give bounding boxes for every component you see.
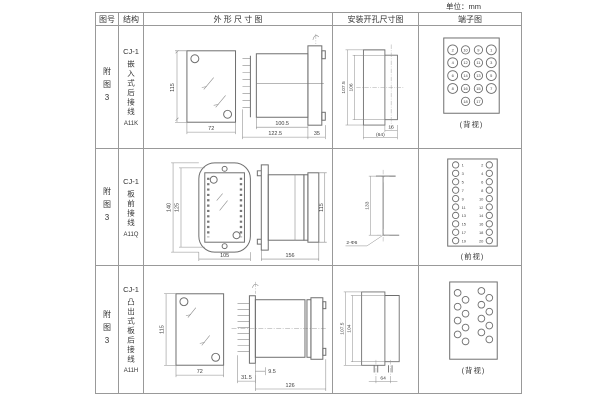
header-outline: 外 形 尺 寸 图 — [144, 13, 333, 26]
fig-no-label: 附图3 — [102, 187, 113, 227]
terminal-caption: (背视) — [460, 119, 484, 129]
header-install: 安装开孔尺寸图 — [333, 13, 419, 26]
front-view — [176, 294, 224, 365]
svg-text:3: 3 — [490, 60, 493, 65]
dim-length: 156 — [261, 242, 319, 261]
outline-svg-row3: 115 72 — [144, 266, 332, 393]
outline-svg-row2: 140 125 105 — [144, 149, 332, 265]
install-svg-row2: 2-Φ6 133 — [333, 149, 418, 265]
svg-text:8: 8 — [481, 188, 484, 193]
dim-106-label: 106 — [349, 83, 355, 91]
terminal-caption: (背视) — [462, 365, 486, 375]
dim-72-label: 72 — [208, 126, 214, 132]
dim-64-label: (64) — [376, 132, 385, 138]
dim-spacing: 133 — [364, 176, 381, 235]
type-code: A11H — [124, 368, 139, 374]
dim-100-5-label: 100.5 — [275, 121, 289, 127]
svg-text:9: 9 — [477, 47, 480, 52]
svg-text:17: 17 — [462, 230, 466, 235]
dim-flange: 35 — [308, 125, 325, 139]
dim-105-label: 105 — [220, 253, 229, 259]
dim-140-label: 140 — [167, 203, 173, 212]
svg-text:10: 10 — [479, 196, 484, 201]
svg-text:2: 2 — [481, 163, 483, 168]
fig-no-label: 附图3 — [102, 310, 113, 350]
dim-133-label: 133 — [364, 201, 370, 209]
svg-text:2: 2 — [452, 47, 454, 52]
dim-width: 72 — [187, 122, 236, 134]
svg-text:5: 5 — [490, 73, 493, 78]
terminal-svg-row3: (背视) — [419, 266, 521, 393]
svg-text:14: 14 — [479, 213, 484, 218]
svg-text:16: 16 — [479, 222, 484, 227]
svg-text:7: 7 — [490, 86, 492, 91]
outline-svg-row1: 115 72 — [144, 26, 332, 148]
terminal-drawing-row1: 210914121136141358161571817 (背视) — [419, 26, 522, 149]
dim-body-length: 100.5 — [256, 117, 308, 129]
dim-31-5-label: 31.5 — [241, 375, 252, 381]
install-drawing-row3: 107.5 104 64 — [333, 266, 419, 394]
dim-72-label: 72 — [197, 369, 203, 375]
outline-drawing-row1: 115 72 — [144, 26, 333, 149]
side-view — [232, 282, 327, 363]
structure-cell-row3: CJ-1 凸出式板后接线 A11H — [119, 266, 144, 394]
install-svg-row1: 107.5 106 16 (64) — [333, 26, 418, 148]
svg-text:11: 11 — [462, 205, 466, 210]
install-svg-row3: 107.5 104 64 — [333, 266, 418, 393]
cutout-shape — [356, 45, 404, 131]
dim-offset: 9.5 — [255, 367, 275, 375]
front-view — [199, 163, 251, 252]
svg-text:1: 1 — [490, 47, 492, 52]
svg-text:5: 5 — [462, 180, 465, 185]
dim-height: 115 — [170, 50, 187, 122]
dim-35-label: 35 — [314, 131, 320, 137]
pin-layer — [454, 288, 492, 345]
spec-table: 图号 结构 外 形 尺 寸 图 安装开孔尺寸图 端子图 附图3 CJ-1 嵌入式… — [95, 12, 522, 394]
svg-text:7: 7 — [462, 188, 464, 193]
dim-width: 105 — [199, 252, 251, 261]
svg-text:11: 11 — [476, 60, 480, 65]
dim-height: 115 — [160, 294, 176, 365]
svg-text:4: 4 — [481, 171, 484, 176]
dim-9-5-label: 9.5 — [268, 369, 276, 375]
svg-text:14: 14 — [463, 73, 468, 78]
install-drawing-row1: 107.5 106 16 (64) — [333, 26, 419, 149]
terminal-drawing-row3: (背视) — [419, 266, 522, 394]
svg-text:6: 6 — [481, 180, 484, 185]
dim-126-label: 126 — [286, 383, 295, 389]
svg-text:12: 12 — [479, 205, 483, 210]
svg-text:1: 1 — [462, 163, 464, 168]
svg-text:15: 15 — [476, 86, 481, 91]
front-view — [187, 51, 236, 122]
svg-text:8: 8 — [452, 86, 455, 91]
type-code: A11Q — [124, 232, 139, 238]
fig-no-cell-row1: 附图3 — [96, 26, 119, 149]
pin-layer: 210914121136141358161571817 — [448, 45, 497, 106]
terminal-caption: (前视) — [461, 251, 485, 261]
svg-text:10: 10 — [463, 47, 468, 52]
structure-desc: 凸出式板后接线 — [126, 298, 137, 365]
svg-text:19: 19 — [462, 238, 467, 243]
structure-cell-row1: CJ-1 嵌入式后接线 A11K — [119, 26, 144, 149]
unit-label: 单位：mm — [446, 1, 481, 12]
svg-text:15: 15 — [462, 222, 467, 227]
dim-104-label: 104 — [346, 324, 352, 332]
dim-125-label: 125 — [175, 203, 181, 212]
svg-text:3: 3 — [462, 171, 465, 176]
structure-desc: 板前接线 — [126, 190, 137, 228]
svg-text:20: 20 — [479, 238, 484, 243]
svg-text:9: 9 — [462, 196, 465, 201]
terminal-box — [448, 159, 498, 246]
dim-inner-height: 104 — [346, 296, 384, 362]
dim-outer-height: 140 — [167, 163, 199, 252]
dim-height: 115 — [319, 173, 327, 242]
dim-107-5-label: 107.5 — [341, 81, 347, 94]
dim-115-label: 115 — [170, 83, 176, 92]
dim-115-label: 115 — [160, 325, 166, 334]
svg-text:4: 4 — [452, 60, 455, 65]
dim-16-label: 16 — [388, 125, 394, 131]
fig-no-label: 附图3 — [102, 67, 113, 107]
pin-layer: 1234567891011121314151617181920 — [452, 162, 492, 244]
outline-drawing-row3: 115 72 — [144, 266, 333, 394]
model-label: CJ-1 — [123, 285, 139, 294]
hole-spec-label: 2-Φ6 — [346, 240, 357, 246]
outline-drawing-row2: 140 125 105 — [144, 149, 333, 266]
dim-slot-width: 16 — [385, 120, 398, 133]
header-terminal: 端子图 — [419, 13, 522, 26]
dim-inner-height: 125 — [175, 168, 205, 247]
terminal-drawing-row2: 1234567891011121314151617181920 (前视) — [419, 149, 522, 266]
svg-text:13: 13 — [462, 213, 467, 218]
dim-156-label: 156 — [286, 253, 295, 259]
dim-length: 126 — [255, 359, 325, 391]
svg-text:17: 17 — [476, 99, 480, 104]
svg-text:18: 18 — [479, 230, 484, 235]
fig-no-cell-row3: 附图3 — [96, 266, 119, 394]
terminal-box — [450, 282, 498, 359]
svg-text:16: 16 — [463, 86, 468, 91]
cutout-shape — [362, 292, 400, 376]
dim-115-label: 115 — [319, 203, 325, 212]
side-view — [242, 34, 325, 125]
terminal-svg-row1: 210914121136141358161571817 (背视) — [419, 26, 521, 148]
spec-sheet-page: 单位：mm 图号 结构 外 形 尺 寸 图 安装开孔尺寸图 端子图 附图3 CJ… — [0, 0, 600, 400]
svg-text:6: 6 — [452, 73, 455, 78]
model-label: CJ-1 — [123, 47, 139, 56]
type-code: A11K — [124, 121, 138, 127]
install-drawing-row2: 2-Φ6 133 — [333, 149, 419, 266]
dim-107-5-label: 107.5 — [339, 322, 345, 335]
dim-plate: 31.5 — [238, 355, 256, 383]
structure-cell-row2: CJ-1 板前接线 A11Q — [119, 149, 144, 266]
terminal-svg-row2: 1234567891011121314151617181920 (前视) — [419, 149, 521, 265]
svg-text:18: 18 — [463, 99, 468, 104]
header-fig-no: 图号 — [96, 13, 119, 26]
side-view — [257, 165, 318, 250]
fig-no-cell-row2: 附图3 — [96, 149, 119, 266]
header-structure: 结构 — [119, 13, 144, 26]
model-label: CJ-1 — [123, 177, 139, 186]
structure-desc: 嵌入式后接线 — [126, 60, 137, 117]
dim-slot-spacing: 64 — [369, 376, 398, 384]
svg-text:13: 13 — [476, 73, 481, 78]
dim-122-5-label: 122.5 — [268, 131, 282, 137]
hole-layout — [346, 170, 400, 246]
dim-width: 72 — [176, 365, 224, 377]
dim-64-label: 64 — [380, 376, 386, 382]
svg-text:12: 12 — [463, 60, 467, 65]
